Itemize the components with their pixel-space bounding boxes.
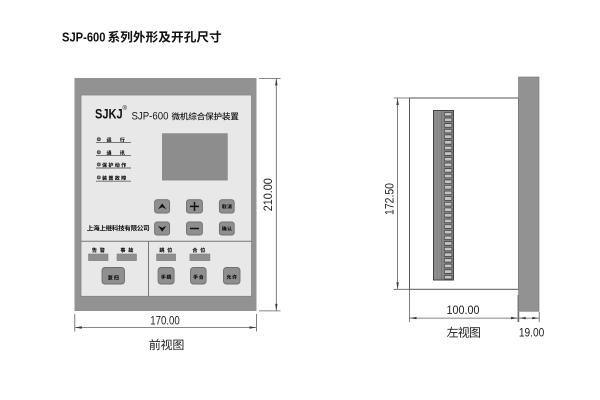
svg-text:SJP-600: SJP-600 <box>62 30 106 45</box>
svg-text:170.00: 170.00 <box>150 313 180 327</box>
svg-text:172.50: 172.50 <box>382 183 396 215</box>
svg-text:SJKJ: SJKJ <box>95 106 123 121</box>
svg-text:SJP-600: SJP-600 <box>132 111 169 123</box>
svg-text:®: ® <box>123 105 128 112</box>
svg-text:100.00: 100.00 <box>447 303 480 317</box>
svg-text:210.00: 210.00 <box>261 178 275 211</box>
svg-text:19.00: 19.00 <box>519 326 545 340</box>
